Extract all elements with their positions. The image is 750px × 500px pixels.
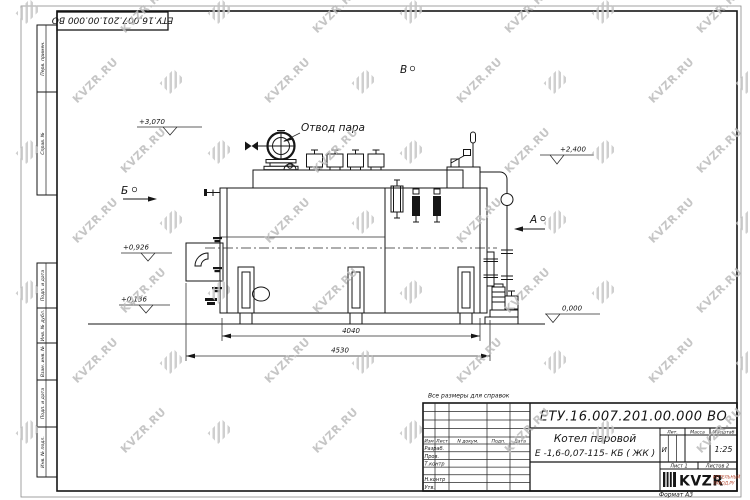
view-label-b: Б: [121, 185, 157, 202]
reference-note: Все размеры для справок: [428, 393, 510, 400]
margin-label-podp-data-1: Подп. и дата: [40, 270, 46, 301]
elevation-0000: 0,000: [545, 305, 600, 323]
col-podp: Подп.: [492, 439, 506, 445]
product-name-line1: Котел паровой: [554, 433, 637, 445]
drawing-sheet: Перв. примен. Справ. № Подп. и дата Инв.…: [0, 0, 750, 500]
corner-stamp-doc-number: ЕТУ.16.007.201.00.000 ВО: [52, 15, 174, 25]
svg-text:+3,070: +3,070: [139, 118, 165, 126]
scale-value: 1:25: [715, 445, 733, 454]
rotated-view-mark: [132, 187, 136, 191]
col-ndoc: N докум.: [457, 439, 478, 445]
margin-label-perv-primen: Перв. примен.: [40, 41, 46, 76]
drawing-canvas: Перв. примен. Справ. № Подп. и дата Инв.…: [0, 0, 750, 500]
title-block: ЕТУ.16.007.201.00.000 ВО Котел паровой Е…: [423, 403, 741, 491]
margin-label-sprav-no: Справ. №: [40, 132, 46, 155]
margin-label-podp-data-2: Подп. и дата: [40, 388, 46, 419]
feed-pump: [484, 252, 519, 324]
dimensions: 4040 4530: [186, 283, 490, 361]
svg-text:Отвод пара: Отвод пара: [301, 122, 365, 134]
steam-drum: [253, 170, 463, 188]
water-gauges: [391, 180, 441, 222]
manhole: [253, 287, 270, 301]
row-razrab: Разраб.: [425, 446, 445, 452]
elevation-0926: +0,926: [121, 244, 172, 262]
row-utv: Утв.: [425, 485, 436, 491]
dim-4040: 4040: [342, 327, 360, 335]
masshtab-header: Масштаб: [713, 430, 735, 436]
kvzr-logo-sub2: ЗАВОД.РУ: [713, 481, 735, 486]
format-label: Формат А3: [659, 492, 693, 499]
elevation-3070: +3,070: [137, 118, 202, 135]
kvzr-logo: KVZR КОТЕЛЬНЫЙ ЗАВОД.РУ: [663, 472, 741, 490]
steam-outlet-callout: Отвод пара: [283, 122, 365, 142]
svg-text:+0,926: +0,926: [123, 244, 149, 252]
boiler-drawing: [88, 131, 545, 325]
rotated-view-mark: [410, 66, 414, 70]
boiler-body: [205, 188, 497, 313]
margin-boxes: Перв. примен. Справ. № Подп. и дата Инв.…: [37, 25, 57, 477]
col-data: Дата: [513, 439, 526, 445]
margin-label-inv-no-dubl: Инв. № дубл.: [40, 310, 46, 341]
titleblock-doc-number: ЕТУ.16.007.201.00.000 ВО: [540, 410, 728, 425]
kvzr-logo-sub1: КОТЕЛЬНЫЙ: [713, 475, 741, 480]
massa-header: Масса: [690, 430, 705, 436]
front-fittings: [204, 189, 222, 305]
row-tkontr: Т.контр: [425, 462, 445, 468]
row-prov: Пров.: [425, 454, 440, 460]
view-label-a: А: [514, 214, 545, 232]
burner: [186, 243, 223, 281]
svg-text:А: А: [529, 214, 537, 226]
safety-valves: [307, 150, 385, 170]
sheets-total: Листов 2: [705, 463, 729, 469]
view-labels: Б А В Отвод пара: [121, 64, 545, 232]
corner-stamp: ЕТУ.16.007.201.00.000 ВО: [52, 12, 174, 30]
sheet-number: Лист 1: [669, 463, 687, 469]
col-izm: Изм: [424, 439, 434, 445]
col-list: Лист: [435, 439, 448, 445]
rotated-view-mark: [541, 216, 545, 220]
support-legs: [238, 267, 474, 324]
svg-text:Б: Б: [121, 185, 128, 197]
margin-label-vzam-inv-no: Взам. инв. №: [40, 346, 46, 377]
elevation-2400: +2,400: [540, 146, 594, 165]
elevation-0136: +0,136: [119, 296, 170, 314]
product-name-line2: Е -1,6-0,07-115- КБ ( ЖК ): [535, 449, 655, 459]
view-label-v: В: [400, 64, 415, 76]
dim-4530: 4530: [331, 347, 349, 355]
svg-text:+0,136: +0,136: [121, 296, 147, 304]
row-nkontr: Н.контр: [425, 477, 446, 483]
svg-text:В: В: [400, 64, 407, 76]
svg-text:0,000: 0,000: [562, 305, 583, 313]
lit-value: И: [662, 446, 668, 454]
svg-text:+2,400: +2,400: [560, 146, 586, 154]
margin-label-inv-no-podl: Инв. № подл.: [40, 436, 46, 468]
lit-header: Лит.: [666, 430, 678, 436]
